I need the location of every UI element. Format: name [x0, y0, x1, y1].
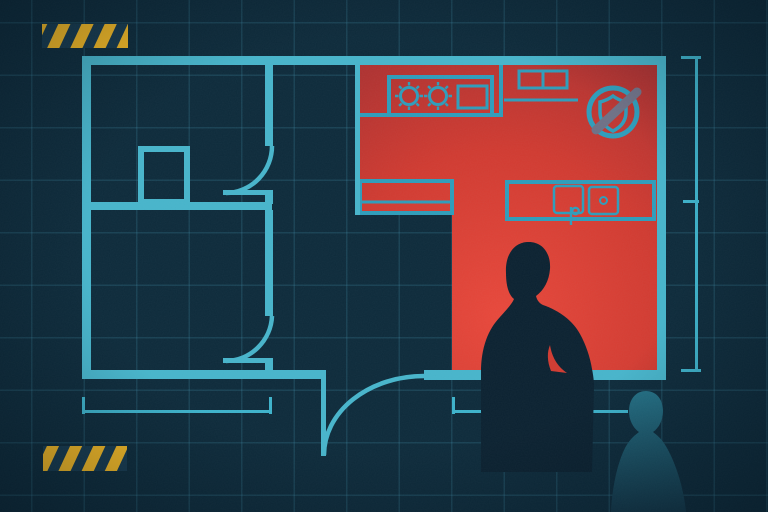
grain-overlay [0, 0, 768, 512]
blueprint-illustration [0, 0, 768, 512]
floor-plan-canvas [0, 0, 768, 512]
